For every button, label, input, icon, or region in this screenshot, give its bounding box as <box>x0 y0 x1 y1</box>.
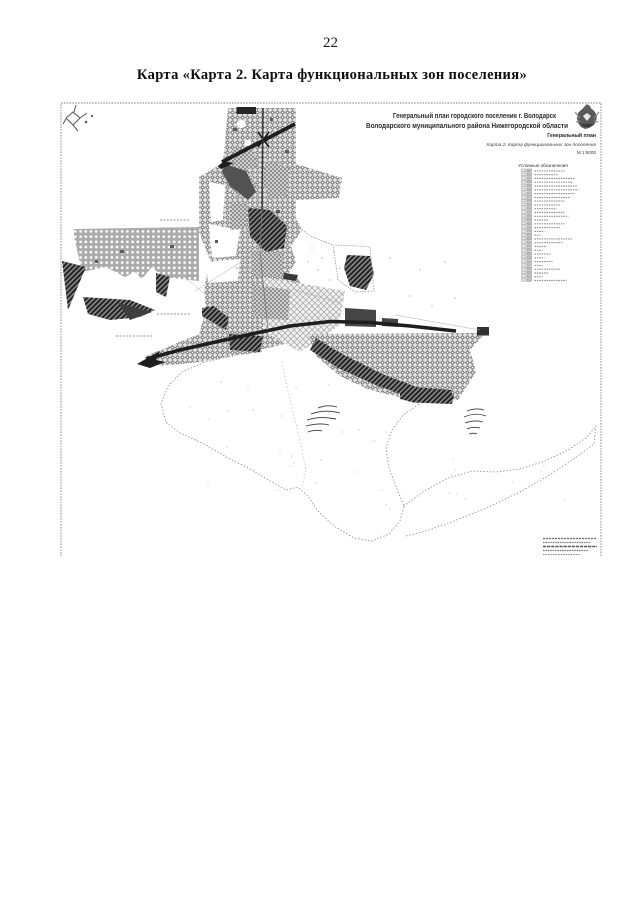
svg-text:Генеральный план: Генеральный план <box>547 132 596 139</box>
svg-text:Условные обозначения: Условные обозначения <box>518 163 568 168</box>
svg-text:Генеральный план городского п: Генеральный план городского поселения г.… <box>393 112 556 120</box>
svg-text:Карта 2. Карта функциональных: Карта 2. Карта функциональных зон поселе… <box>487 142 597 148</box>
svg-text:М 1:5000: М 1:5000 <box>577 150 597 155</box>
svg-text:Володарского муниципального ра: Володарского муниципального района Нижег… <box>366 122 568 130</box>
